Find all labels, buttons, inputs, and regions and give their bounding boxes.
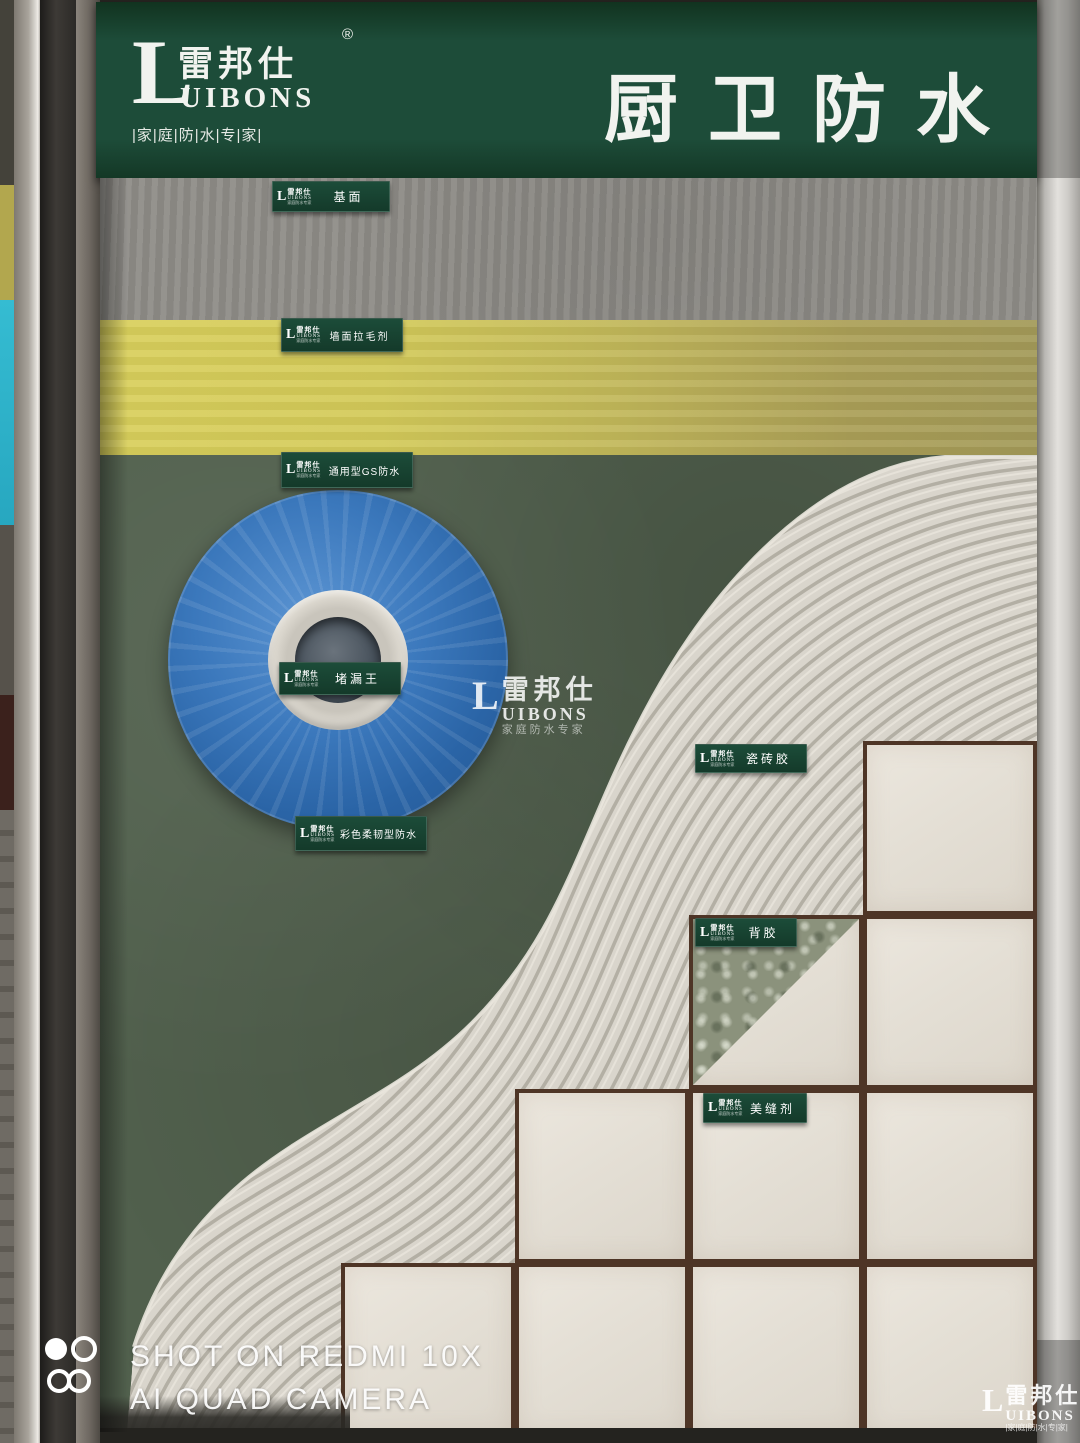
label-text: 通用型GS防水: [321, 463, 408, 478]
registered-mark: ®: [342, 26, 353, 43]
brand-name-en: UIBONS: [180, 82, 315, 115]
label-text: 墙面拉毛剂: [321, 328, 398, 343]
label-brand-logo: L雷邦仕UIBONS家庭防水专家: [700, 751, 735, 767]
label-text: 基面: [312, 188, 385, 205]
brand-name-cn: 雷邦仕: [178, 36, 298, 87]
display-board-photo: L 雷邦仕 ® UIBONS |家|庭|防|水|专|家| 厨卫防水: [0, 0, 1080, 1443]
product-label-tile-adhesive: L雷邦仕UIBONS家庭防水专家 瓷砖胶: [695, 744, 807, 773]
right-frame: [1037, 0, 1080, 1443]
label-text: 背胶: [735, 924, 792, 941]
product-label-base-surface: L雷邦仕UIBONS家庭防水专家 基面: [272, 181, 390, 212]
label-brand-logo: L雷邦仕UIBONS家庭防水专家: [708, 1100, 743, 1116]
label-text: 瓷砖胶: [735, 750, 802, 767]
left-edge-strip: [0, 0, 14, 1443]
label-brand-logo: L雷邦仕UIBONS家庭防水专家: [286, 327, 321, 343]
product-label-grout-sealant: L雷邦仕UIBONS家庭防水专家 美缝剂: [703, 1093, 807, 1123]
brand-tagline: |家|庭|防|水|专|家|: [132, 124, 262, 145]
label-brand-logo: L雷邦仕UIBONS家庭防水专家: [284, 671, 319, 687]
brand-logo: L 雷邦仕 ® UIBONS |家|庭|防|水|专|家|: [132, 22, 372, 164]
label-brand-logo: L雷邦仕UIBONS家庭防水专家: [700, 925, 735, 941]
product-label-back-glue: L雷邦仕UIBONS家庭防水专家 背胶: [695, 918, 797, 947]
label-text: 美缝剂: [743, 1100, 802, 1117]
label-text: 堵漏王: [319, 670, 396, 687]
right-frame-top-shade: [1037, 0, 1080, 178]
left-frame-rail: [14, 0, 40, 1443]
edge-strip-yellow: [0, 185, 14, 300]
label-text: 彩色柔韧型防水: [335, 826, 422, 841]
product-label-roughening-agent: L雷邦仕UIBONS家庭防水专家 墙面拉毛剂: [281, 318, 403, 352]
edge-strip-gray: [0, 525, 14, 695]
edge-strip-dark: [0, 0, 14, 185]
label-brand-logo: L雷邦仕UIBONS家庭防水专家: [300, 826, 335, 842]
floor-shadow-strip: [100, 1428, 1037, 1443]
board-title: 厨卫防水: [562, 50, 1032, 157]
left-frame-dark-bar: [40, 0, 76, 1443]
product-label-leak-blocker: L雷邦仕UIBONS家庭防水专家 堵漏王: [279, 662, 401, 695]
edge-strip-cyan: [0, 300, 14, 525]
product-label-flexible-waterproof: L雷邦仕UIBONS家庭防水专家 彩色柔韧型防水: [295, 816, 427, 851]
edge-strip-streaked: [0, 810, 14, 1443]
edge-strip-maroon: [0, 695, 14, 810]
wall-roughening-layer: [100, 320, 1037, 455]
header-banner: L 雷邦仕 ® UIBONS |家|庭|防|水|专|家| 厨卫防水: [96, 2, 1037, 178]
right-frame-bottom-shade: [1037, 1340, 1080, 1443]
product-label-gs-waterproof: L雷邦仕UIBONS家庭防水专家 通用型GS防水: [281, 452, 413, 488]
label-brand-logo: L雷邦仕UIBONS家庭防水专家: [286, 462, 321, 478]
base-surface-layer: [100, 178, 1037, 320]
left-frame-inner-rail: [76, 0, 100, 1443]
label-brand-logo: L雷邦仕UIBONS家庭防水专家: [277, 189, 312, 205]
